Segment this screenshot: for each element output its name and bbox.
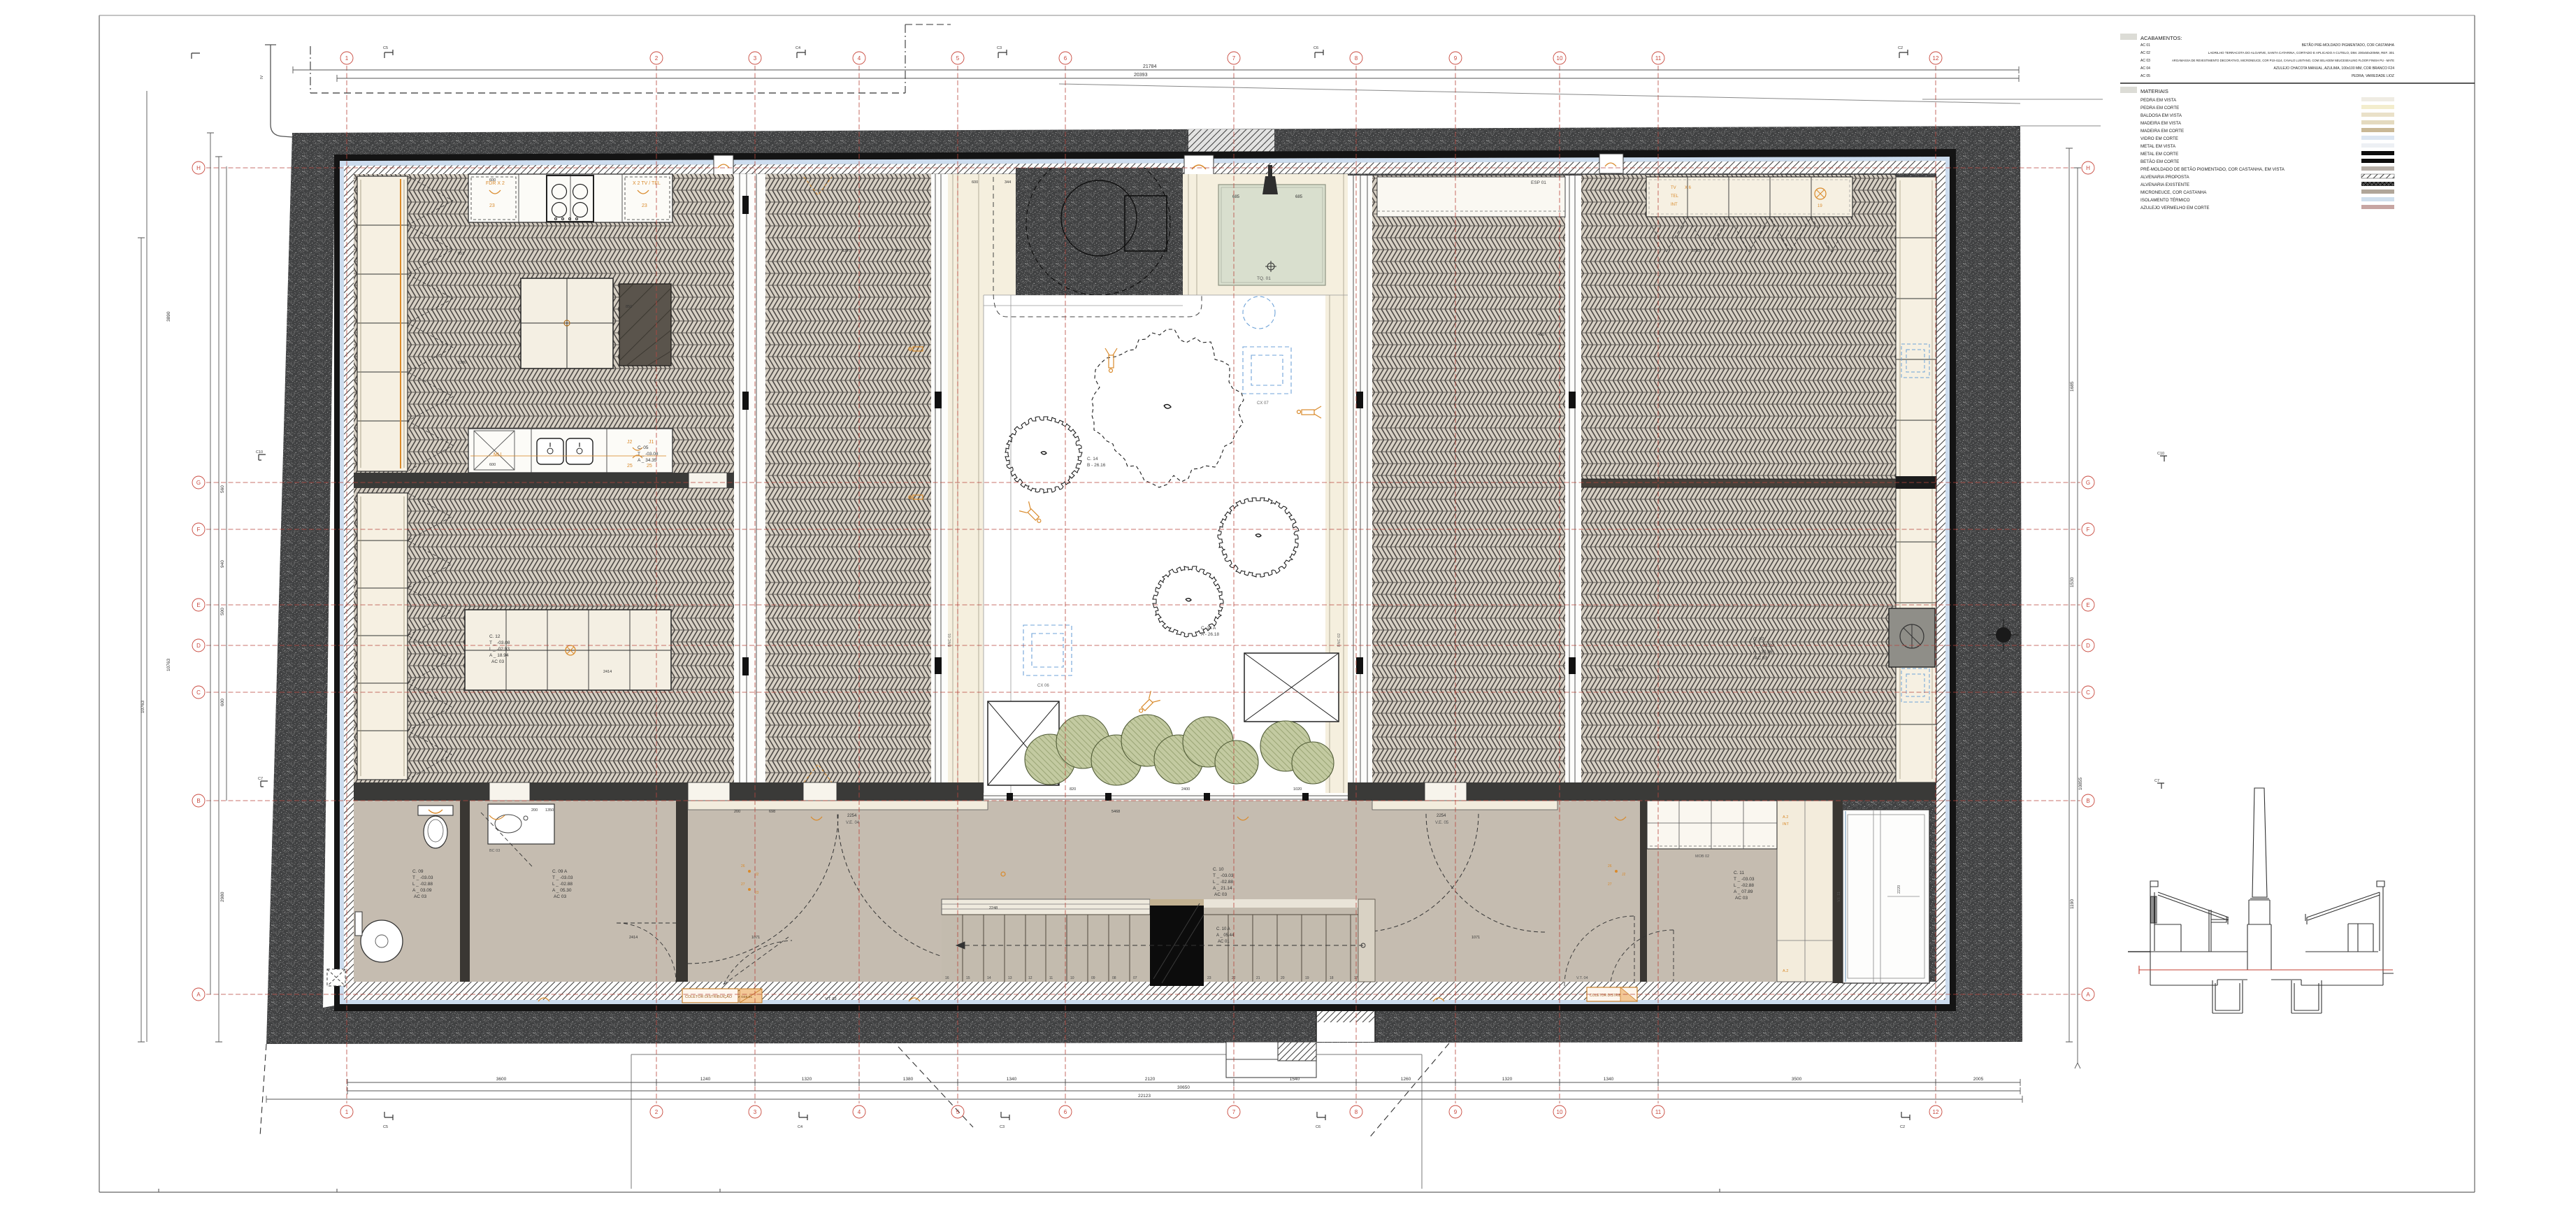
svg-text:CX 07: CX 07 xyxy=(1257,401,1269,406)
svg-text:14: 14 xyxy=(987,976,991,980)
svg-text:AC 03: AC 03 xyxy=(554,894,566,899)
svg-text:1380: 1380 xyxy=(458,361,466,365)
svg-text:C4: C4 xyxy=(798,1125,803,1129)
svg-text:10: 10 xyxy=(1070,976,1074,980)
svg-text:G: G xyxy=(2086,480,2090,486)
svg-text:BNC 02: BNC 02 xyxy=(1337,634,1341,647)
svg-text:METAL EM VISTA: METAL EM VISTA xyxy=(2140,144,2176,149)
svg-text:C2: C2 xyxy=(1898,46,1903,50)
svg-text:MOB 02: MOB 02 xyxy=(1695,854,1709,859)
svg-text:15: 15 xyxy=(966,976,970,980)
svg-text:23: 23 xyxy=(642,203,647,208)
svg-text:BNC 01: BNC 01 xyxy=(948,634,952,647)
svg-text:600: 600 xyxy=(972,180,978,185)
svg-text:C. 09: C. 09 xyxy=(412,869,424,874)
svg-text:600: 600 xyxy=(489,178,496,183)
svg-text:1540: 1540 xyxy=(1290,1077,1300,1082)
svg-text:J2: J2 xyxy=(1622,873,1626,877)
svg-text:L _ -02.88: L _ -02.88 xyxy=(1734,883,1754,888)
svg-text:820: 820 xyxy=(1070,787,1076,792)
svg-text:V.T. 03: V.T. 03 xyxy=(825,997,837,1001)
svg-text:12: 12 xyxy=(1028,976,1032,980)
svg-text:850: 850 xyxy=(626,305,632,309)
svg-text:2414: 2414 xyxy=(629,936,638,940)
svg-text:AC 02: AC 02 xyxy=(2140,51,2150,55)
svg-text:AC 01: AC 01 xyxy=(1218,940,1230,944)
svg-text:5: 5 xyxy=(956,1109,960,1115)
svg-text:10763: 10763 xyxy=(141,701,145,713)
svg-text:C. 14: C. 14 xyxy=(1087,457,1098,462)
svg-text:C. 12: C. 12 xyxy=(489,634,501,639)
svg-text:AC 03: AC 03 xyxy=(1755,656,1767,661)
svg-text:G: G xyxy=(196,480,201,486)
svg-text:853: 853 xyxy=(458,252,464,256)
svg-text:C3: C3 xyxy=(1000,1125,1005,1129)
svg-text:PRÉ-MOLDADO DE BETÃO PIGMENTAD: PRÉ-MOLDADO DE BETÃO PIGMENTADO, COR CAS… xyxy=(2140,167,2285,172)
svg-text:A _ 30.96: A _ 30.96 xyxy=(1753,650,1773,654)
svg-text:9: 9 xyxy=(1454,55,1458,62)
svg-text:TEL: TEL xyxy=(1671,194,1679,199)
svg-text:T _ -03.03: T _ -03.03 xyxy=(412,875,433,880)
svg-text:ALVENARIA PROPOSTA: ALVENARIA PROPOSTA xyxy=(2140,175,2189,180)
svg-text:1320: 1320 xyxy=(1502,1077,1513,1082)
svg-text:1: 1 xyxy=(345,1109,349,1115)
svg-text:08: 08 xyxy=(1112,976,1116,980)
svg-text:954: 954 xyxy=(895,249,901,253)
svg-text:C. 07: C. 07 xyxy=(1753,637,1764,642)
svg-text:A _ 18.94: A _ 18.94 xyxy=(489,653,509,658)
svg-text:C. 11: C. 11 xyxy=(1734,871,1744,875)
svg-text:D: D xyxy=(2086,643,2090,649)
svg-text:AC 03: AC 03 xyxy=(2140,59,2150,63)
svg-text:COLETOR DISTRIBUIÇÃO: COLETOR DISTRIBUIÇÃO xyxy=(685,994,733,999)
svg-text:1240: 1240 xyxy=(700,1077,711,1082)
svg-text:685: 685 xyxy=(1295,195,1303,199)
svg-text:2120: 2120 xyxy=(1145,1077,1156,1082)
svg-text:A: A xyxy=(196,992,201,998)
svg-text:C. 05: C. 05 xyxy=(638,445,649,450)
svg-text:12: 12 xyxy=(1933,1109,1939,1115)
svg-text:B - 26.16: B - 26.16 xyxy=(1087,463,1106,468)
svg-text:X 6: X 6 xyxy=(1685,186,1692,190)
svg-text:AC 01: AC 01 xyxy=(2140,43,2150,48)
svg-text:C4: C4 xyxy=(796,46,800,50)
svg-text:ESP 01: ESP 01 xyxy=(1531,180,1546,185)
svg-text:2980: 2980 xyxy=(220,892,225,902)
svg-text:L _ -02.88: L _ -02.88 xyxy=(1213,880,1233,885)
svg-text:L _ -02.93: L _ -02.93 xyxy=(489,647,510,652)
svg-text:C. 10 A: C. 10 A xyxy=(1216,927,1230,931)
svg-text:10763: 10763 xyxy=(166,659,171,671)
svg-text:2: 2 xyxy=(655,1109,659,1115)
svg-text:1260: 1260 xyxy=(1401,1077,1411,1082)
svg-text:18: 18 xyxy=(1330,976,1334,980)
svg-text:INT: INT xyxy=(1671,203,1678,207)
svg-text:10: 10 xyxy=(1557,1109,1563,1115)
svg-text:V.E. 04: V.E. 04 xyxy=(846,821,860,825)
svg-text:GEB.EL: GEB.EL xyxy=(741,995,753,999)
svg-text:BETÃO EM CORTE: BETÃO EM CORTE xyxy=(2140,159,2179,164)
svg-text:INT: INT xyxy=(1783,822,1790,827)
svg-text:10855: 10855 xyxy=(2078,778,2083,790)
svg-text:ACABAMENTOS:: ACABAMENTOS: xyxy=(2140,35,2182,41)
svg-text:C6: C6 xyxy=(1314,46,1318,50)
svg-text:J2: J2 xyxy=(755,873,759,877)
svg-text:3890: 3890 xyxy=(166,311,171,322)
svg-text:BETÃO PRÉ-MOLDADO PIGMENTADO,: BETÃO PRÉ-MOLDADO PIGMENTADO, COR CASTAN… xyxy=(2302,43,2395,48)
svg-text:2254: 2254 xyxy=(1437,814,1446,818)
svg-text:5468: 5468 xyxy=(1111,810,1120,814)
svg-text:21784: 21784 xyxy=(1143,64,1157,69)
svg-text:MADEIRA EM CORTE: MADEIRA EM CORTE xyxy=(2140,129,2184,134)
svg-text:L _ -02.88: L _ -02.88 xyxy=(412,882,433,887)
svg-text:4: 4 xyxy=(858,55,861,62)
svg-text:E: E xyxy=(196,602,200,608)
svg-text:METAL EM CORTE: METAL EM CORTE xyxy=(2140,152,2178,157)
svg-text:C. 14 A: C. 14 A xyxy=(1201,626,1216,631)
svg-text:C6: C6 xyxy=(1316,1125,1321,1129)
svg-text:ISOLAMENTO TÉRMICO: ISOLAMENTO TÉRMICO xyxy=(2140,198,2190,203)
svg-text:7: 7 xyxy=(1232,1109,1236,1115)
svg-text:C7: C7 xyxy=(258,777,263,781)
svg-text:500: 500 xyxy=(220,608,225,615)
svg-text:1270: 1270 xyxy=(842,249,851,253)
svg-text:A.2: A.2 xyxy=(1783,815,1788,820)
svg-text:698: 698 xyxy=(769,810,775,814)
svg-text:AC 03: AC 03 xyxy=(491,659,504,664)
svg-text:C. 09 A: C. 09 A xyxy=(552,869,568,874)
svg-text:13: 13 xyxy=(1008,976,1012,980)
svg-text:BALDOSA EM VISTA: BALDOSA EM VISTA xyxy=(2140,113,2182,118)
svg-text:4: 4 xyxy=(858,1109,861,1115)
svg-text:26: 26 xyxy=(741,864,745,868)
svg-text:AZULEJO CHACOTA MANUAL, AZULIM: AZULEJO CHACOTA MANUAL, AZULIMA, 100x100… xyxy=(2274,66,2395,71)
svg-text:1190: 1190 xyxy=(2070,899,2075,909)
svg-text:2: 2 xyxy=(655,55,659,62)
svg-text:T _ -03.03: T _ -03.03 xyxy=(1213,873,1234,878)
svg-text:11: 11 xyxy=(1049,976,1053,980)
svg-text:C. 10: C. 10 xyxy=(1213,867,1224,872)
svg-text:C: C xyxy=(2086,689,2090,696)
svg-text:2220: 2220 xyxy=(1897,885,1901,894)
svg-text:1685: 1685 xyxy=(2070,381,2075,392)
svg-text:C5: C5 xyxy=(383,1125,388,1129)
svg-text:T _ -03.03: T _ -03.03 xyxy=(1734,877,1755,882)
svg-text:2005: 2005 xyxy=(1973,1077,1984,1082)
svg-text:V.T. 04: V.T. 04 xyxy=(1576,976,1588,980)
svg-text:27: 27 xyxy=(741,882,745,887)
svg-text:20: 20 xyxy=(1281,976,1285,980)
svg-text:E: E xyxy=(2086,602,2089,608)
svg-text:AC 04: AC 04 xyxy=(2140,66,2150,71)
svg-text:T _ -03.03: T _ -03.03 xyxy=(1753,643,1774,648)
svg-text:27: 27 xyxy=(1608,882,1612,887)
svg-text:1071: 1071 xyxy=(1472,936,1480,940)
svg-text:3: 3 xyxy=(754,55,757,62)
svg-text:J1: J1 xyxy=(649,440,654,445)
svg-text:1: 1 xyxy=(345,55,349,62)
svg-text:BC 03: BC 03 xyxy=(489,849,500,853)
svg-text:C3: C3 xyxy=(997,46,1002,50)
svg-text:J2: J2 xyxy=(627,440,633,445)
svg-text:21: 21 xyxy=(1256,976,1260,980)
svg-text:600: 600 xyxy=(489,463,496,467)
svg-text:TQ. 01: TQ. 01 xyxy=(1257,276,1271,281)
svg-text:ALVENARIA EXISTENTE: ALVENARIA EXISTENTE xyxy=(2140,183,2189,187)
svg-text:C10: C10 xyxy=(256,450,263,455)
svg-text:344: 344 xyxy=(1005,180,1011,185)
svg-text:3500: 3500 xyxy=(1792,1077,1802,1082)
svg-text:6: 6 xyxy=(1064,1109,1067,1115)
svg-text:C7: C7 xyxy=(2154,779,2159,783)
svg-text:200: 200 xyxy=(734,810,740,814)
svg-text:2248: 2248 xyxy=(989,906,998,910)
svg-text:AC 03: AC 03 xyxy=(414,894,426,899)
svg-text:1340: 1340 xyxy=(1604,1077,1614,1082)
svg-text:ARGAMASSA DE REVESTIMENTO DECO: ARGAMASSA DE REVESTIMENTO DECORATIVO, MI… xyxy=(2172,59,2394,62)
svg-text:19: 19 xyxy=(1818,204,1822,208)
svg-text:450: 450 xyxy=(1538,333,1544,337)
svg-text:6: 6 xyxy=(1064,55,1067,62)
svg-text:8: 8 xyxy=(1355,55,1358,62)
svg-text:1530: 1530 xyxy=(2070,577,2075,587)
svg-text:7: 7 xyxy=(1232,55,1236,62)
svg-text:810: 810 xyxy=(1873,249,1880,253)
svg-text:A.2: A.2 xyxy=(1783,969,1788,973)
svg-text:LADRILHO TERRACOTA DO ALGARVE,: LADRILHO TERRACOTA DO ALGARVE, SANTA CAT… xyxy=(2208,51,2395,55)
svg-text:1350: 1350 xyxy=(545,808,554,813)
svg-text:PEDRA EM CORTE: PEDRA EM CORTE xyxy=(2140,106,2179,110)
svg-text:A _ 34.35: A _ 34.35 xyxy=(638,458,657,463)
svg-text:AC 05: AC 05 xyxy=(2140,74,2150,78)
svg-text:T _ -03.03: T _ -03.03 xyxy=(552,875,573,880)
svg-text:T _ -03.08: T _ -03.08 xyxy=(489,641,510,645)
svg-text:PEDRA, VARIEDADE LIOZ: PEDRA, VARIEDADE LIOZ xyxy=(2352,74,2394,78)
svg-text:5: 5 xyxy=(956,55,960,62)
svg-text:1020: 1020 xyxy=(1293,787,1302,792)
svg-text:TV: TV xyxy=(1671,186,1676,190)
svg-text:940: 940 xyxy=(220,560,225,568)
svg-text:2414: 2414 xyxy=(603,670,612,674)
svg-text:2400: 2400 xyxy=(1181,787,1190,792)
svg-text:C5: C5 xyxy=(383,46,388,50)
svg-text:V.E. 05: V.E. 05 xyxy=(1435,821,1449,825)
svg-text:4572: 4572 xyxy=(1615,668,1623,673)
svg-text:PEDRA EM VISTA: PEDRA EM VISTA xyxy=(2140,98,2177,103)
svg-text:J3: J3 xyxy=(755,891,759,895)
svg-text:3755: 3755 xyxy=(1692,249,1700,253)
svg-text:25: 25 xyxy=(627,464,633,468)
svg-text:A _ 07.89: A _ 07.89 xyxy=(1734,889,1753,894)
svg-text:AZULEJO VERMELHO EM CORTE: AZULEJO VERMELHO EM CORTE xyxy=(2140,206,2210,210)
svg-text:25: 25 xyxy=(647,464,652,468)
svg-text:9: 9 xyxy=(1454,1109,1458,1115)
svg-text:C: C xyxy=(196,689,201,696)
svg-text:H: H xyxy=(196,165,201,171)
svg-text:07: 07 xyxy=(1133,976,1137,980)
svg-text:A _ 03.09: A _ 03.09 xyxy=(412,888,432,893)
svg-text:11: 11 xyxy=(1655,55,1662,62)
svg-text:3: 3 xyxy=(754,1109,757,1115)
svg-text:3600: 3600 xyxy=(496,1077,507,1082)
svg-text:23: 23 xyxy=(1207,976,1211,980)
svg-text:10: 10 xyxy=(1557,55,1563,62)
svg-text:30650: 30650 xyxy=(1177,1085,1190,1090)
svg-text:A - 26.18: A - 26.18 xyxy=(1201,632,1219,637)
svg-text:11: 11 xyxy=(1655,1109,1662,1115)
svg-text:1320: 1320 xyxy=(802,1077,812,1082)
svg-text:A _ 05.44: A _ 05.44 xyxy=(1216,933,1235,938)
svg-text:260: 260 xyxy=(1160,180,1167,185)
svg-text:22123: 22123 xyxy=(1138,1094,1151,1099)
svg-text:AC 03: AC 03 xyxy=(1214,892,1227,897)
svg-text:560: 560 xyxy=(220,485,225,493)
svg-text:V.I. 11: V.I. 11 xyxy=(1837,892,1841,902)
svg-text:VIDRO EM CORTE: VIDRO EM CORTE xyxy=(2140,136,2178,141)
svg-text:20393: 20393 xyxy=(1134,73,1148,78)
svg-text:8: 8 xyxy=(1355,1109,1358,1115)
svg-text:H: H xyxy=(2086,165,2090,171)
svg-text:A: A xyxy=(2086,992,2090,998)
svg-text:AC 03: AC 03 xyxy=(1735,896,1748,901)
svg-text:16: 16 xyxy=(945,976,949,980)
svg-text:T _ -03.08: T _ -03.08 xyxy=(638,452,659,457)
svg-text:19: 19 xyxy=(1305,976,1309,980)
svg-text:1340: 1340 xyxy=(1007,1077,1017,1082)
svg-text:09: 09 xyxy=(1091,976,1095,980)
svg-text:600: 600 xyxy=(220,699,225,706)
svg-text:F: F xyxy=(197,527,201,533)
svg-text:F: F xyxy=(2087,527,2090,533)
svg-text:MLL: MLL xyxy=(494,452,503,457)
svg-text:A _ 05.30: A _ 05.30 xyxy=(552,888,572,893)
svg-text:MADEIRA EM VISTA: MADEIRA EM VISTA xyxy=(2140,121,2182,126)
svg-text:200: 200 xyxy=(531,808,538,813)
svg-text:23: 23 xyxy=(489,203,495,208)
svg-text:D: D xyxy=(196,643,201,649)
svg-text:1071: 1071 xyxy=(751,936,760,940)
svg-text:MICRONEUCE, COR CASTANHA: MICRONEUCE, COR CASTANHA xyxy=(2140,190,2207,195)
svg-text:Ø100: Ø100 xyxy=(2015,633,2019,643)
svg-text:C2: C2 xyxy=(1900,1125,1905,1129)
svg-text:L _ -02.88: L _ -02.88 xyxy=(552,882,573,887)
svg-text:A _ 21.14: A _ 21.14 xyxy=(1213,886,1232,891)
svg-text:B: B xyxy=(196,798,200,804)
svg-text:MATERIAIS: MATERIAIS xyxy=(2140,88,2168,94)
svg-text:B: B xyxy=(2086,798,2089,804)
svg-text:C10: C10 xyxy=(2157,452,2164,456)
svg-text:1380: 1380 xyxy=(903,1077,914,1082)
svg-text:CX 06: CX 06 xyxy=(1037,684,1049,688)
svg-text:IV: IV xyxy=(260,75,264,79)
svg-text:26: 26 xyxy=(1608,864,1612,868)
svg-text:2254: 2254 xyxy=(847,814,857,818)
svg-text:12: 12 xyxy=(1933,55,1939,62)
